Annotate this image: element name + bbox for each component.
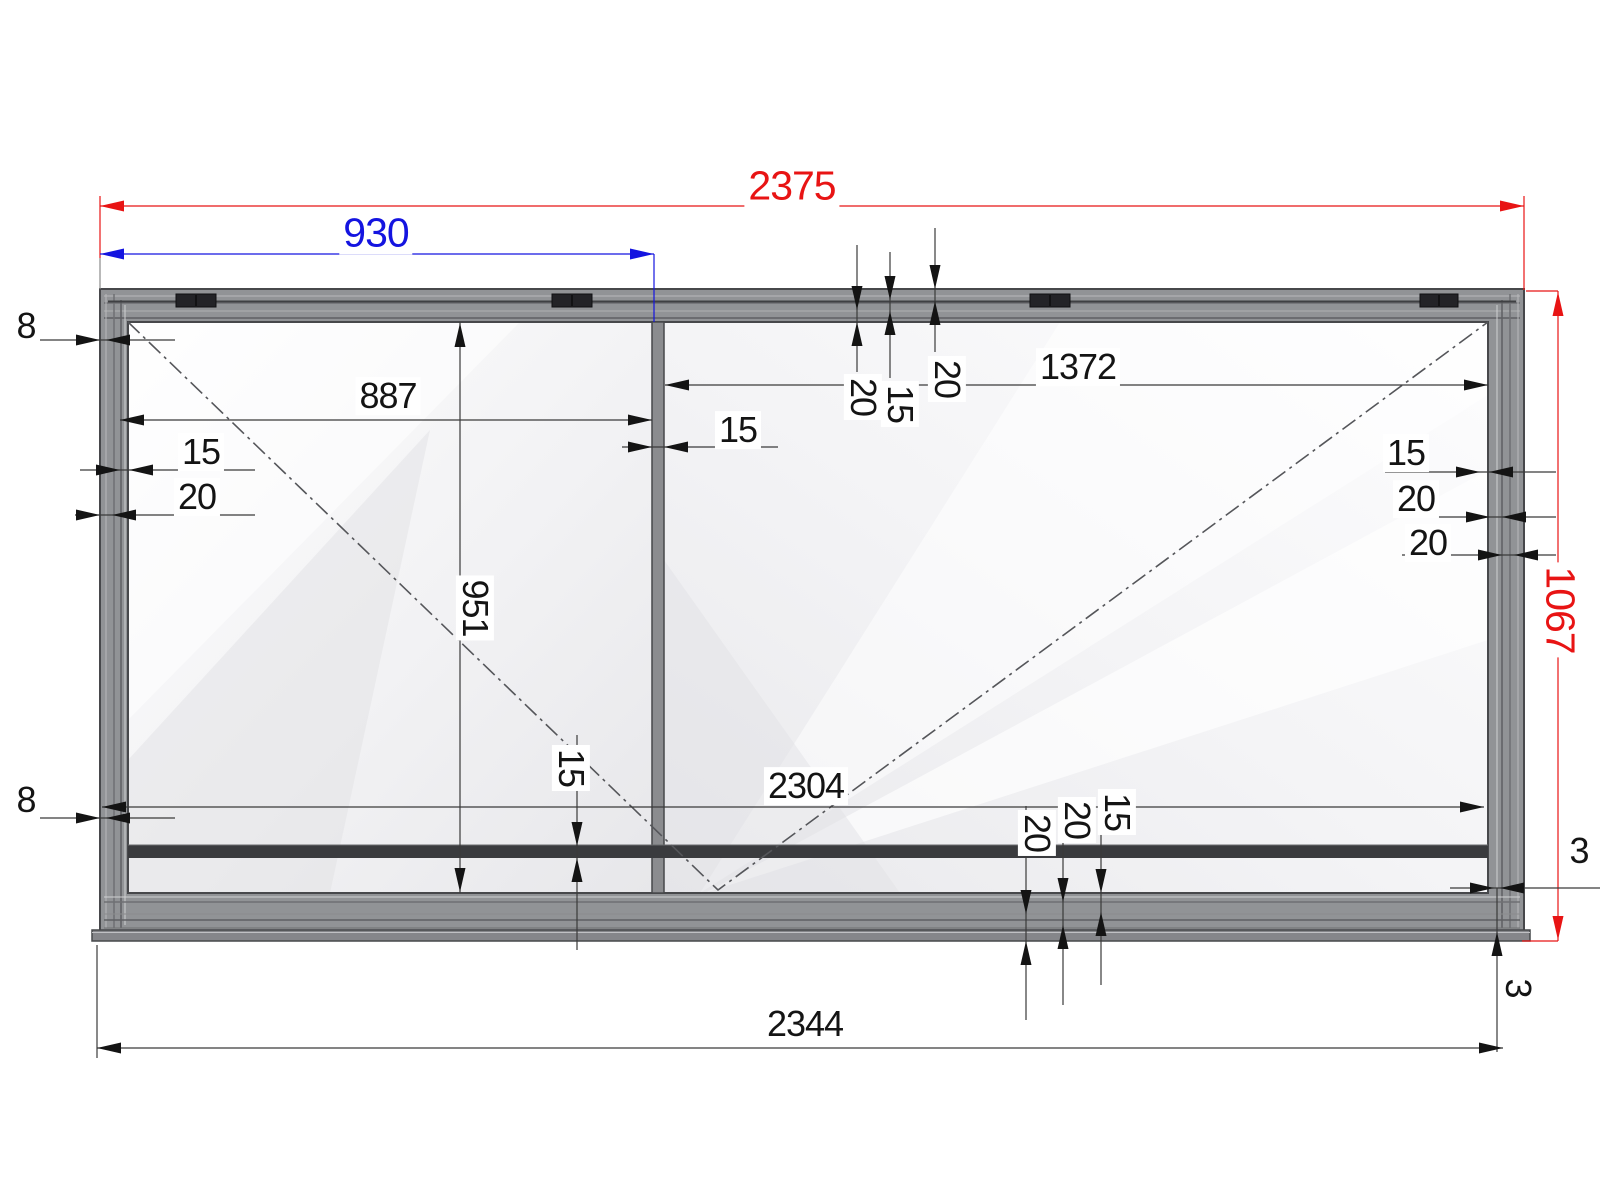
bottom-rail-bar [128, 845, 1488, 858]
dim-gap-right: 3 [1565, 832, 1592, 870]
dim-glass-height: 951 [456, 575, 494, 640]
dim-bottom-profile-c: 15 [1098, 789, 1136, 835]
dim-top-profile-b: 15 [881, 381, 919, 427]
dim-mullion: 15 [715, 411, 761, 449]
dim-right-glazing: 15 [1383, 434, 1429, 472]
technical-drawing-canvas: 2375 930 887 1372 8 8 15 20 15 20 15 20 … [0, 0, 1600, 1200]
dim-base-width: 2344 [763, 1005, 847, 1043]
dim-top-profile-c: 20 [928, 356, 966, 402]
dim-right-frame-a: 20 [1393, 480, 1439, 518]
dim-overall-height: 1067 [1538, 562, 1581, 657]
dim-left-glazing: 15 [178, 433, 224, 471]
dim-sash-width: 930 [339, 211, 412, 254]
dim-gap-bottom-right: 3 [1499, 974, 1537, 1001]
dim-bottom-profile-b: 20 [1058, 797, 1096, 843]
dim-right-frame-b: 20 [1405, 524, 1451, 562]
dim-reveal-top-left: 8 [12, 307, 39, 345]
dim-clear-width: 2304 [764, 767, 848, 805]
dim-overall-width: 2375 [744, 164, 839, 207]
dim-bottom-bar: 15 [552, 745, 590, 791]
sill-profile [92, 930, 1530, 941]
dim-bottom-profile-a: 20 [1018, 810, 1056, 856]
dim-right-glass-width: 1372 [1036, 348, 1120, 386]
dim-reveal-bottom-left: 8 [12, 781, 39, 819]
dim-left-frame: 20 [174, 478, 220, 516]
dim-left-glass-width: 887 [355, 377, 420, 415]
dim-top-profile-a: 20 [844, 374, 882, 420]
